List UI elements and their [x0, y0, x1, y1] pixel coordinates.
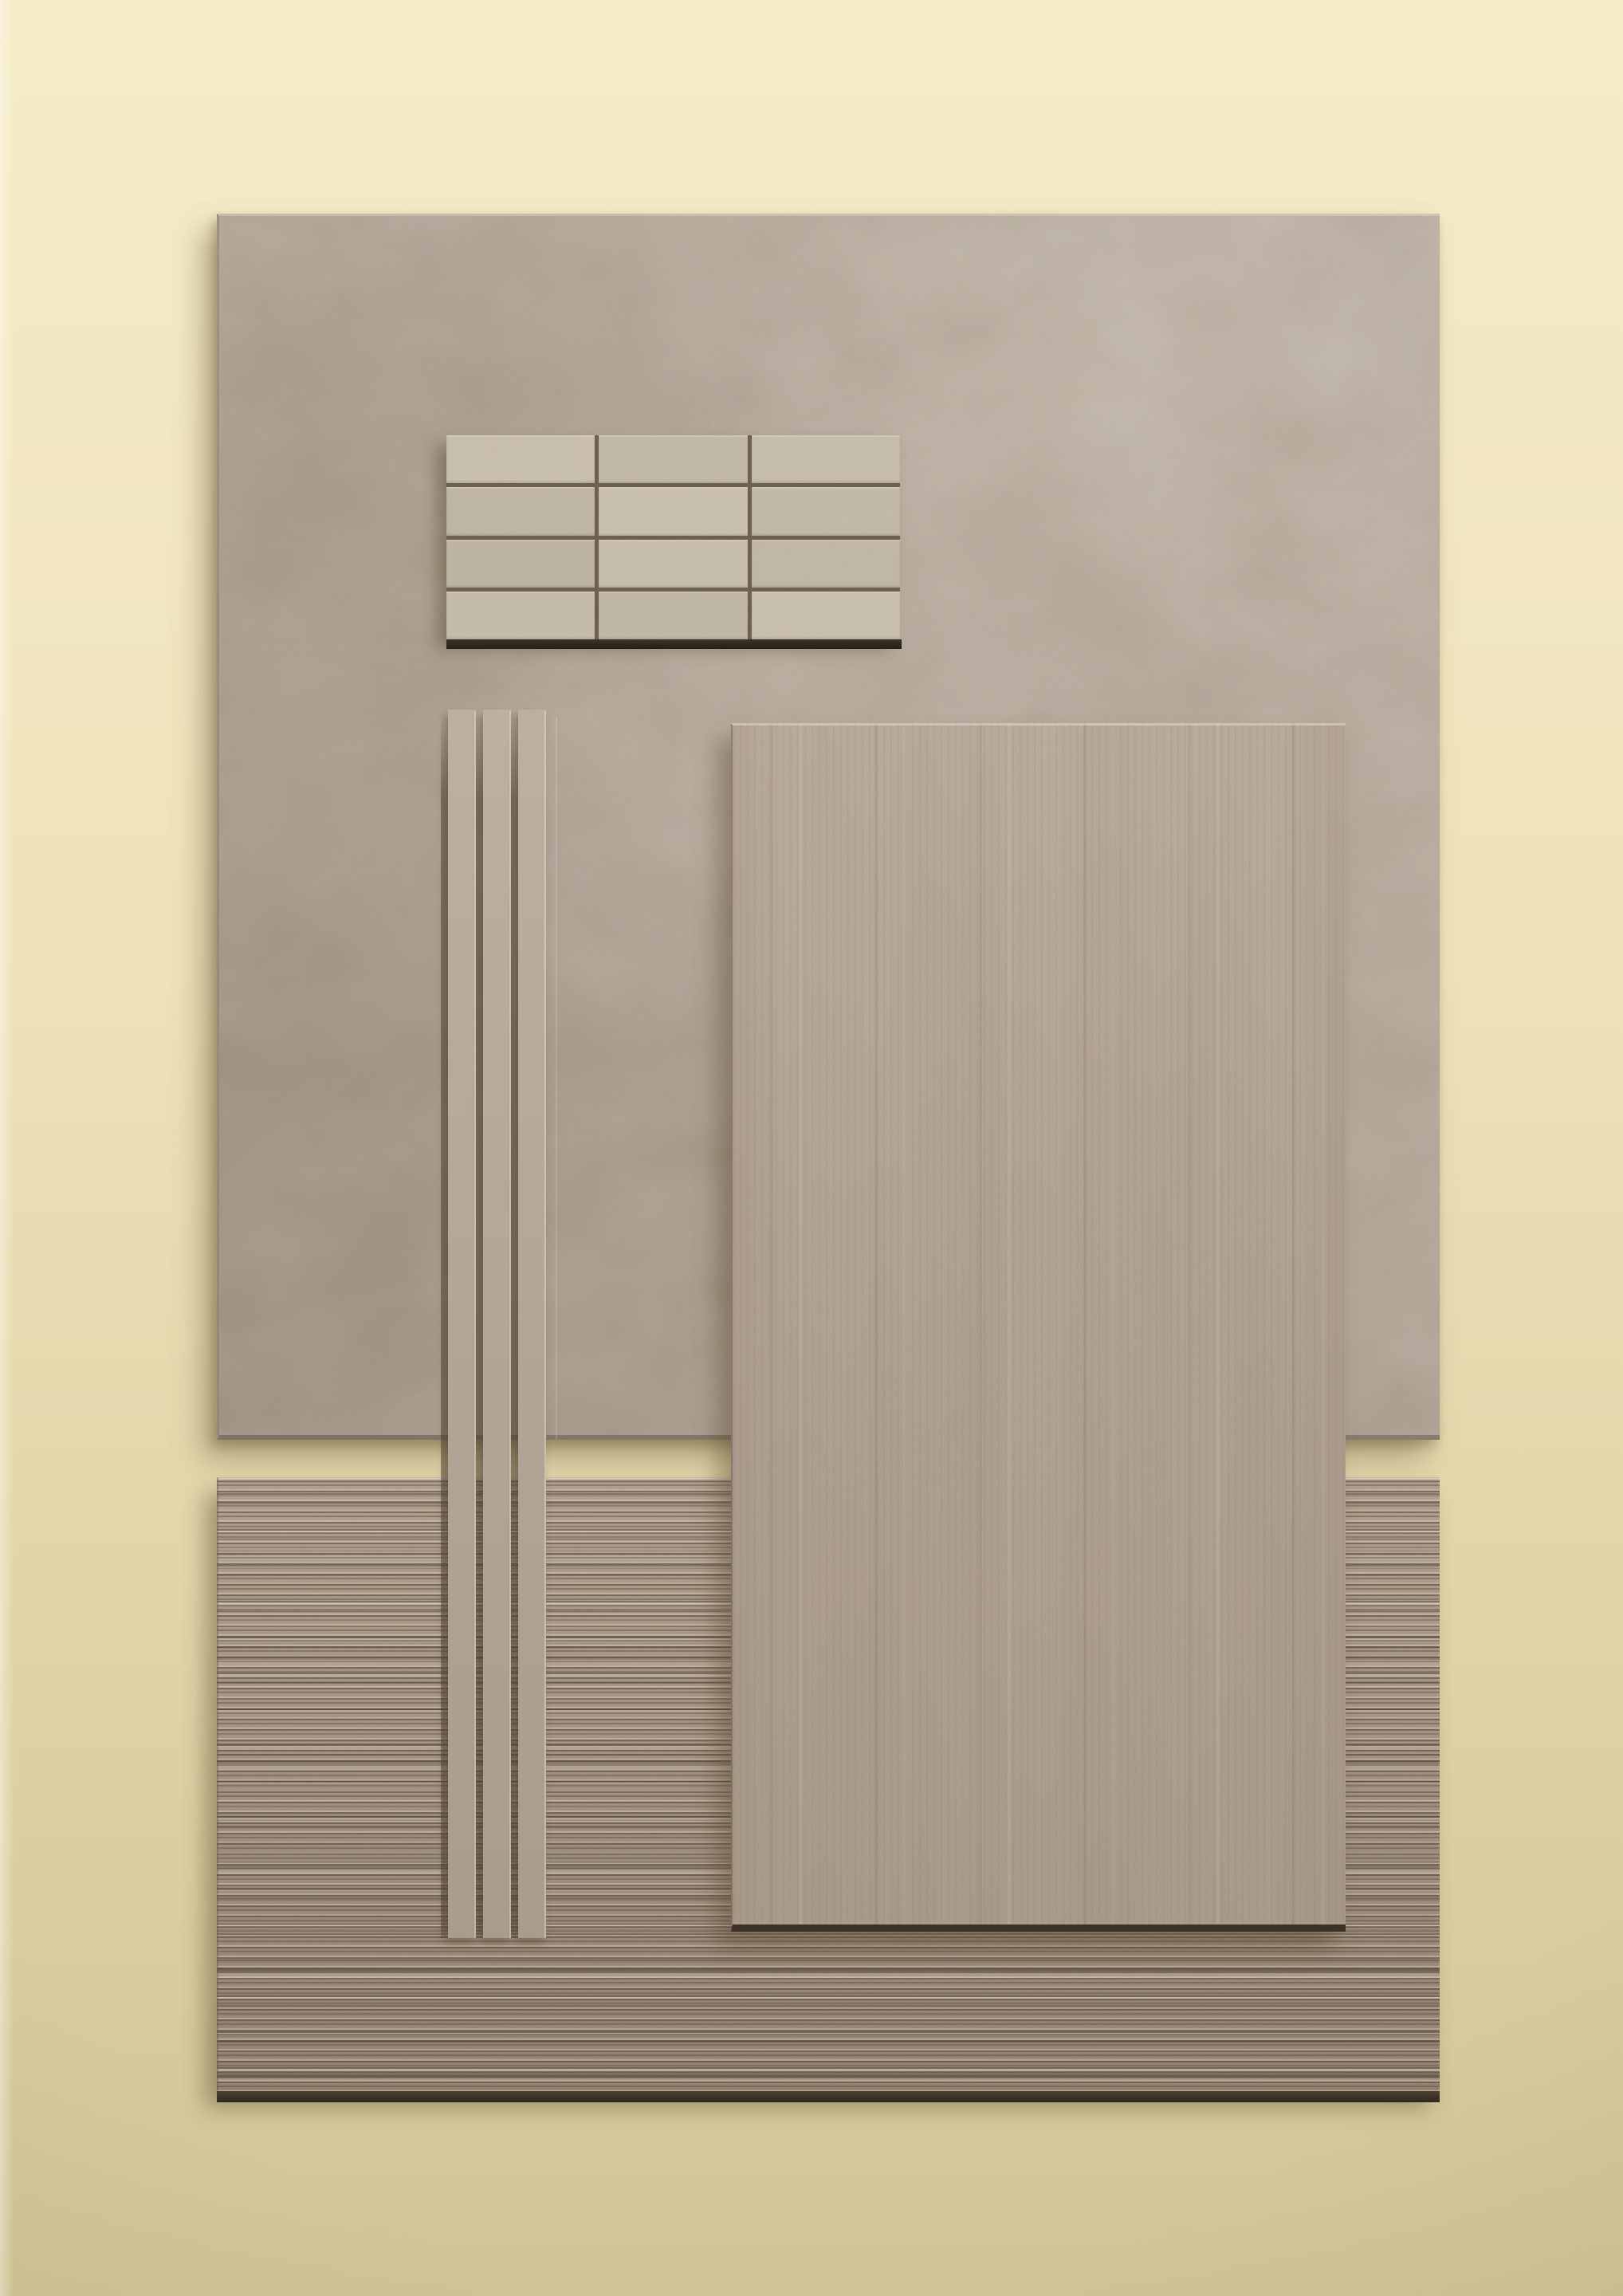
mosaic-tile: [599, 540, 747, 588]
mosaic-tile: [446, 592, 595, 639]
mosaic-tile: [752, 487, 900, 535]
vein-grain-texture: [733, 725, 1346, 1924]
mosaic-front-edge: [446, 639, 902, 649]
mosaic-tile: [446, 487, 595, 535]
brick-mosaic-sample: [446, 435, 900, 639]
mosaic-tile: [752, 540, 900, 588]
backdrop-light-edge: [0, 0, 14, 2296]
mosaic-tile: [446, 540, 595, 588]
mosaic-tile: [599, 592, 747, 639]
mosaic-tile: [752, 592, 900, 639]
mosaic-tile: [446, 435, 595, 483]
mosaic-tile: [599, 435, 747, 483]
mosaic-tile: [752, 435, 900, 483]
tile-sample-photo: [0, 0, 1623, 2296]
mosaic-tile: [599, 487, 747, 535]
mosaic-grid: [446, 435, 900, 639]
trim-strip-edge-highlight: [556, 717, 557, 1440]
veined-field-tile: [731, 723, 1346, 1932]
fluted-panel-front-edge: [217, 2091, 1440, 2102]
